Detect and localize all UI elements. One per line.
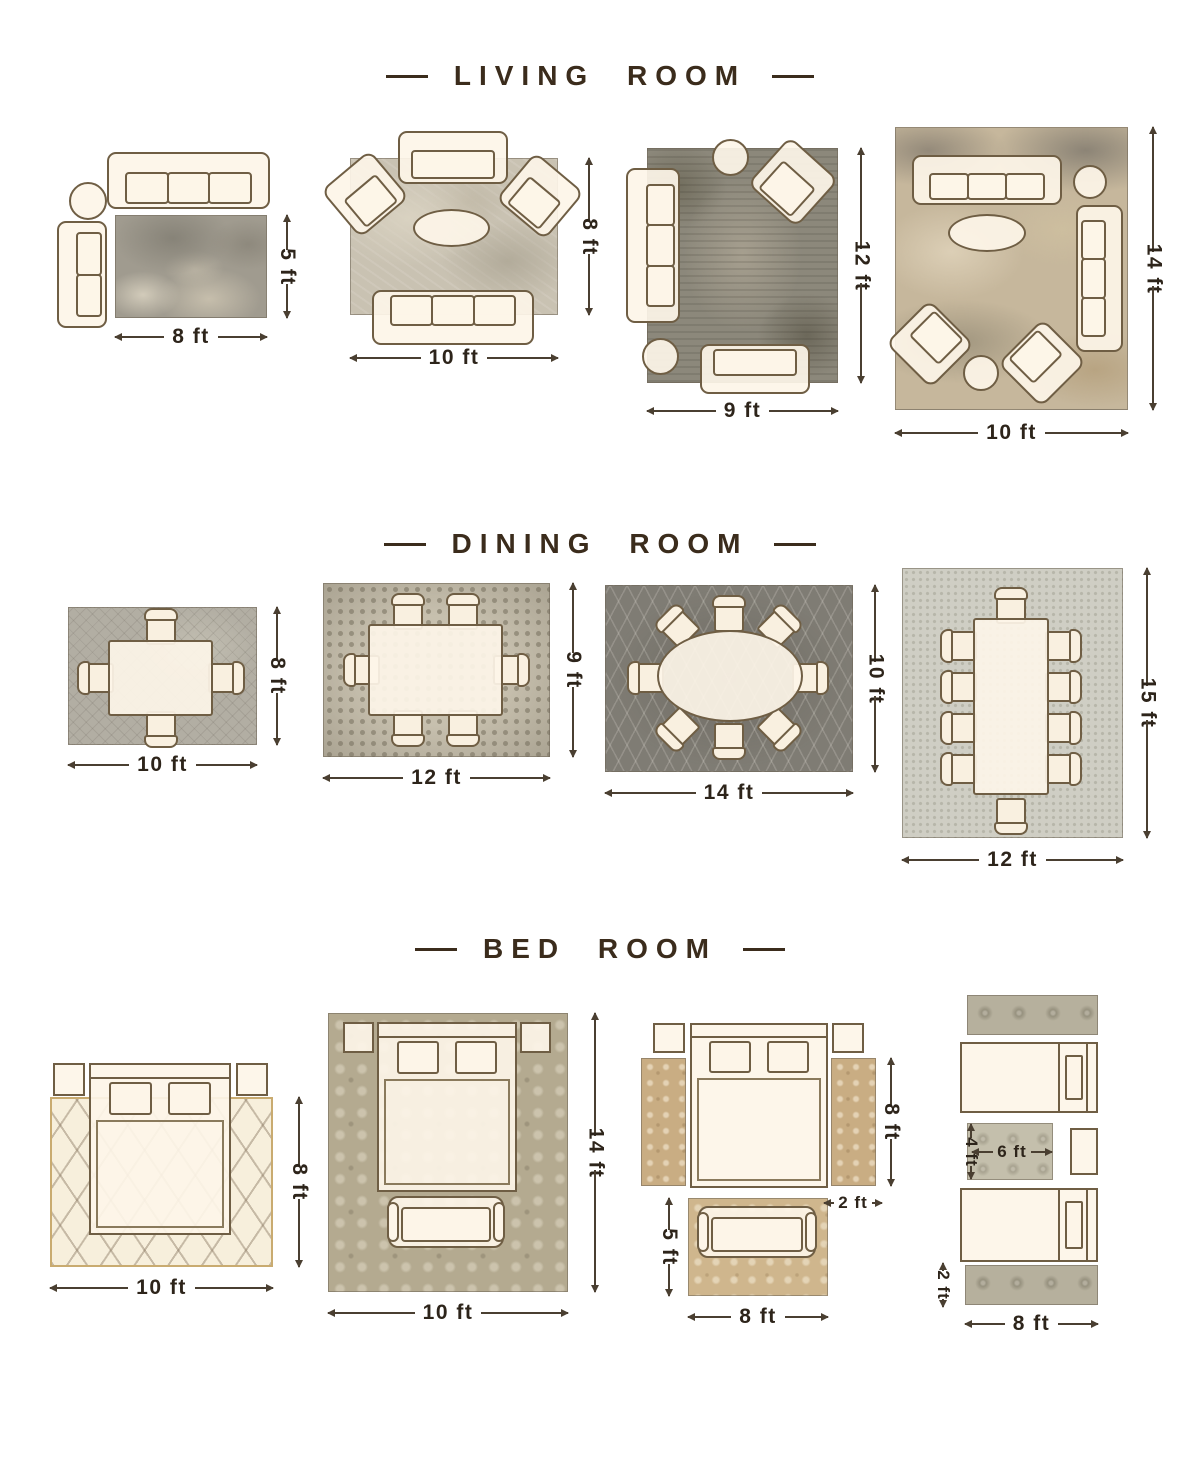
nightstand — [1070, 1128, 1098, 1175]
loveseat — [398, 131, 508, 184]
dim-label: 9 ft — [724, 399, 762, 423]
dimension-foot-width: 8 ft — [688, 1305, 828, 1329]
oval-coffee-table — [413, 209, 490, 247]
dining-chair — [1045, 713, 1077, 743]
dimension-height: 5 ft — [274, 215, 300, 318]
dimension-width: 9 ft — [647, 399, 838, 423]
section-title-bed-room: BED ROOM — [0, 933, 1200, 965]
dim-label: 8 ft — [287, 1163, 311, 1201]
dim-label: 8 ft — [739, 1305, 777, 1329]
rug-8x5 — [115, 215, 267, 318]
title-dash — [386, 75, 428, 78]
loveseat — [57, 221, 107, 328]
runner-rug-2x8 — [831, 1058, 876, 1186]
dimension-width: 12 ft — [902, 848, 1123, 872]
dimension-runner-height: 2 ft — [930, 1263, 956, 1307]
round-side-table — [1073, 165, 1107, 199]
loveseat — [700, 344, 810, 394]
dim-label: 8 ft — [172, 325, 210, 349]
sofa — [107, 152, 270, 209]
bench — [698, 1206, 816, 1258]
twin-bed — [960, 1188, 1098, 1262]
dimension-width: 10 ft — [328, 1301, 568, 1325]
title-dash — [774, 543, 816, 546]
dim-label: 2 ft — [933, 1270, 953, 1300]
dim-label: 8 ft — [577, 218, 601, 256]
bed — [377, 1022, 517, 1192]
round-side-table — [963, 355, 999, 391]
dim-label: 12 ft — [411, 766, 462, 790]
dimension-width: 10 ft — [50, 1276, 273, 1300]
dim-label: 12 ft — [987, 848, 1038, 872]
dining-chair — [1045, 754, 1077, 784]
dimension-height: 14 ft — [1140, 127, 1166, 410]
bench — [388, 1196, 504, 1248]
section-title-living-room: LIVING ROOM — [0, 60, 1200, 92]
dimension-accent-width: 6 ft — [972, 1142, 1052, 1162]
rug-size-guide-poster: LIVING ROOM 5 ft 8 ft 8 ft 10 ft 12 ft 9… — [0, 0, 1200, 1467]
dining-table — [108, 640, 213, 716]
dim-label: 5 ft — [657, 1228, 681, 1266]
title-dash — [415, 948, 457, 951]
round-side-table — [69, 182, 107, 220]
twin-bed — [960, 1042, 1098, 1113]
dim-label: 10 ft — [136, 1276, 187, 1300]
dimension-height: 12 ft — [848, 148, 874, 383]
runner-rug-8x2 — [965, 1265, 1098, 1305]
title-dash — [384, 543, 426, 546]
dim-label: 8 ft — [265, 657, 289, 695]
dimension-height: 8 ft — [286, 1097, 312, 1267]
oval-dining-table — [657, 630, 803, 722]
dimension-height: 14 ft — [582, 1013, 608, 1292]
dim-label: 10 ft — [986, 421, 1037, 445]
dim-label: 6 ft — [997, 1142, 1027, 1162]
nightstand — [520, 1022, 551, 1053]
dimension-runner-height: 8 ft — [878, 1058, 904, 1186]
dimension-runner-width: 2 ft — [824, 1193, 882, 1213]
dim-label: 14 ft — [704, 781, 755, 805]
dimension-width: 12 ft — [323, 766, 550, 790]
nightstand — [653, 1023, 685, 1053]
dining-chair — [714, 723, 744, 755]
nightstand — [236, 1063, 268, 1096]
bed — [89, 1063, 231, 1235]
round-side-table — [642, 338, 679, 375]
dimension-width: 10 ft — [350, 346, 558, 370]
dimension-width: 14 ft — [605, 781, 853, 805]
bed — [690, 1023, 828, 1188]
dim-label: 9 ft — [561, 651, 585, 689]
section-title-text: BED ROOM — [483, 933, 717, 965]
round-side-table — [712, 139, 749, 176]
section-title-text: DINING ROOM — [452, 528, 749, 560]
dimension-height: 9 ft — [560, 583, 586, 757]
dim-label: 5 ft — [275, 248, 299, 286]
dim-label: 8 ft — [1013, 1312, 1051, 1336]
dimension-width: 8 ft — [965, 1312, 1098, 1336]
dining-chair — [1045, 672, 1077, 702]
dining-chair — [714, 600, 744, 632]
dimension-height: 10 ft — [862, 585, 888, 772]
dining-table — [368, 624, 503, 716]
oval-coffee-table — [948, 214, 1026, 252]
title-dash — [772, 75, 814, 78]
dimension-foot-height: 5 ft — [656, 1198, 682, 1296]
nightstand — [53, 1063, 85, 1096]
runner-rug-2x8 — [641, 1058, 686, 1186]
runner-rug-8x2 — [967, 995, 1098, 1035]
sofa — [912, 155, 1062, 205]
nightstand — [832, 1023, 864, 1053]
sofa — [372, 290, 534, 345]
section-title-dining-room: DINING ROOM — [0, 528, 1200, 560]
dimension-height: 8 ft — [576, 158, 602, 315]
dimension-height: 15 ft — [1134, 568, 1160, 838]
dim-label: 10 ft — [137, 753, 188, 777]
sofa — [626, 168, 680, 323]
dimension-width: 10 ft — [68, 753, 257, 777]
dining-table — [973, 618, 1049, 795]
dining-chair — [996, 798, 1026, 830]
dim-label: 8 ft — [879, 1103, 903, 1141]
dim-label: 10 ft — [423, 1301, 474, 1325]
dimension-width: 8 ft — [115, 325, 267, 349]
section-title-text: LIVING ROOM — [454, 60, 746, 92]
title-dash — [743, 948, 785, 951]
dim-label: 2 ft — [838, 1193, 868, 1213]
dining-chair — [1045, 631, 1077, 661]
dimension-width: 10 ft — [895, 421, 1128, 445]
dim-label: 10 ft — [429, 346, 480, 370]
sofa — [1076, 205, 1123, 352]
nightstand — [343, 1022, 374, 1053]
dimension-height: 8 ft — [264, 607, 290, 745]
